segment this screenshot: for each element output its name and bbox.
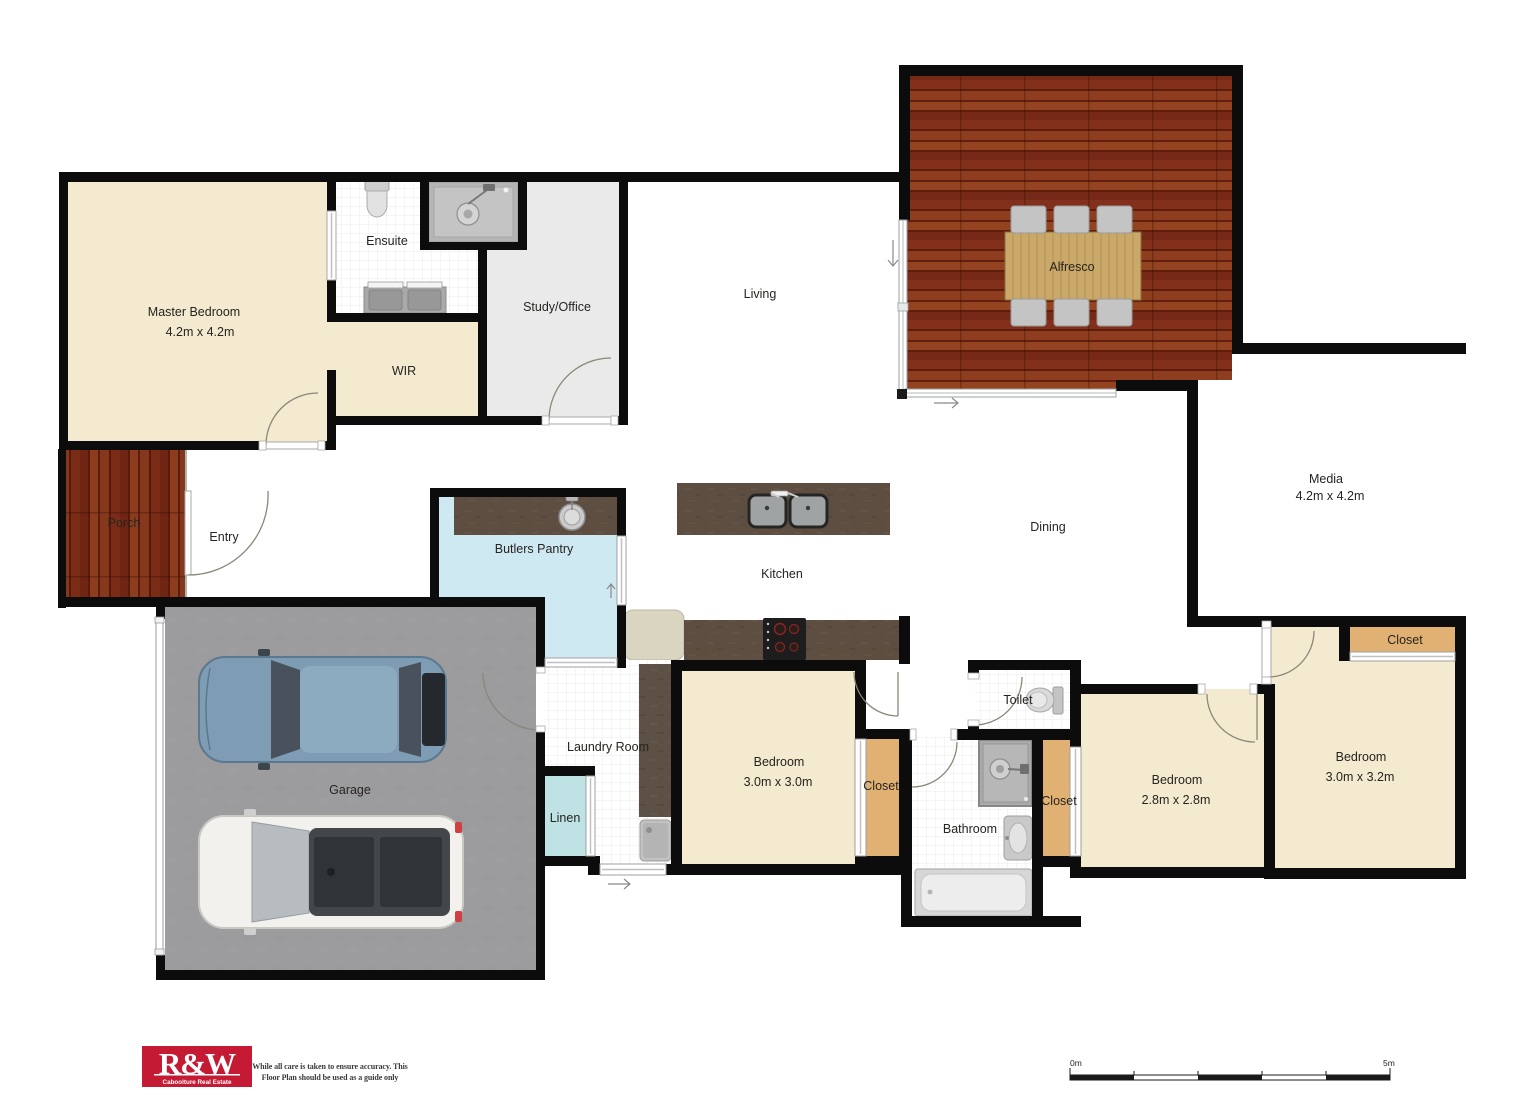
- svg-text:R&W: R&W: [159, 1046, 236, 1081]
- svg-text:Master Bedroom: Master Bedroom: [148, 305, 240, 319]
- svg-text:Entry: Entry: [209, 530, 239, 544]
- svg-text:3.0m x 3.0m: 3.0m x 3.0m: [744, 775, 813, 789]
- svg-text:Porch: Porch: [108, 516, 141, 530]
- svg-text:Bedroom: Bedroom: [1336, 750, 1387, 764]
- svg-text:4.2m x 4.2m: 4.2m x 4.2m: [166, 325, 235, 339]
- svg-text:Toilet: Toilet: [1003, 693, 1033, 707]
- svg-text:Closet: Closet: [863, 779, 899, 793]
- svg-text:WIR: WIR: [392, 364, 416, 378]
- svg-text:Butlers Pantry: Butlers Pantry: [495, 542, 574, 556]
- svg-text:3.0m x 3.2m: 3.0m x 3.2m: [1326, 770, 1395, 784]
- svg-text:Kitchen: Kitchen: [761, 567, 803, 581]
- svg-text:Dining: Dining: [1030, 520, 1065, 534]
- svg-text:0m: 0m: [1070, 1058, 1082, 1068]
- svg-text:Caboolture Real Estate: Caboolture Real Estate: [163, 1079, 232, 1086]
- svg-text:Floor Plan should be used as a: Floor Plan should be used as a guide onl…: [262, 1073, 399, 1082]
- svg-text:Closet: Closet: [1041, 794, 1077, 808]
- svg-text:Media: Media: [1309, 472, 1343, 486]
- svg-text:Living: Living: [744, 287, 777, 301]
- svg-text:While all care is taken to ens: While all care is taken to ensure accura…: [252, 1062, 407, 1071]
- svg-text:Ensuite: Ensuite: [366, 234, 408, 248]
- svg-text:Bedroom: Bedroom: [1152, 773, 1203, 787]
- svg-text:Bedroom: Bedroom: [754, 755, 805, 769]
- svg-text:2.8m x 2.8m: 2.8m x 2.8m: [1142, 793, 1211, 807]
- svg-text:Linen: Linen: [550, 811, 581, 825]
- svg-text:Laundry Room: Laundry Room: [567, 740, 649, 754]
- svg-text:Bathroom: Bathroom: [943, 822, 997, 836]
- svg-text:5m: 5m: [1383, 1058, 1395, 1068]
- svg-text:Alfresco: Alfresco: [1049, 260, 1094, 274]
- svg-text:Garage: Garage: [329, 783, 371, 797]
- svg-text:4.2m x 4.2m: 4.2m x 4.2m: [1296, 489, 1365, 503]
- svg-text:Study/Office: Study/Office: [523, 300, 591, 314]
- svg-text:Closet: Closet: [1387, 633, 1423, 647]
